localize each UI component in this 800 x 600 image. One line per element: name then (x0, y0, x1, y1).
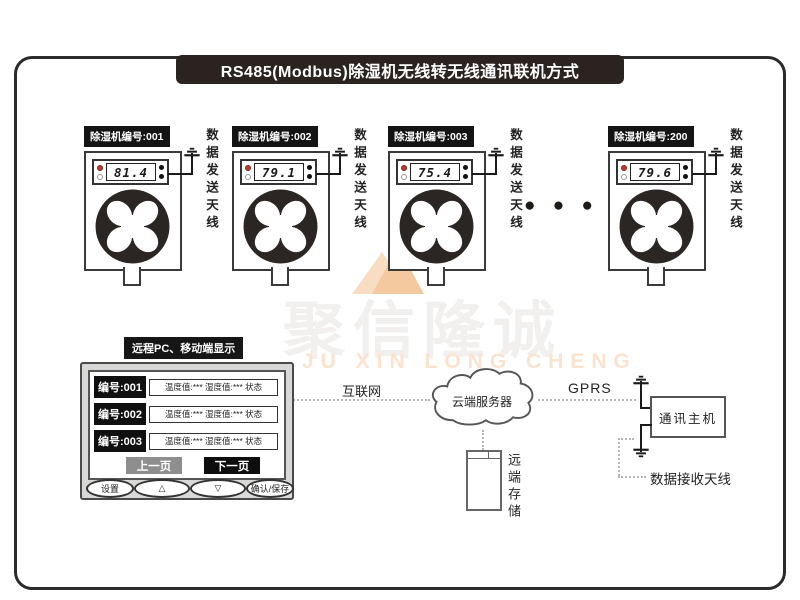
monitor-row: 编号:002 温度值:*** 湿度值:*** 状态 (94, 404, 278, 424)
unit-foot (123, 267, 141, 286)
row-info: 温度值:*** 湿度值:*** 状态 (149, 379, 278, 396)
host-tx-antenna-icon (632, 436, 650, 459)
led-indicators (401, 165, 407, 180)
fan-icon (94, 188, 171, 265)
unit-foot (427, 267, 445, 286)
settings-button[interactable]: 设置 (86, 479, 134, 498)
title-banner: RS485(Modbus)除湿机无线转无线通讯联机方式 (176, 55, 624, 84)
unit-id-badge: 除湿机编号:003 (388, 126, 474, 147)
status-led-icon (621, 174, 627, 180)
up-arrow-button[interactable]: △ (134, 479, 190, 498)
send-antenna-label: 数据发送天线 (350, 128, 369, 233)
antenna-icon (183, 146, 201, 169)
row-info: 温度值:*** 湿度值:*** 状态 (149, 406, 278, 423)
comm-host-box: 通讯主机 (650, 396, 726, 438)
storage-box-lid (468, 452, 500, 459)
gprs-label: GPRS (568, 380, 612, 396)
power-led-icon (401, 165, 407, 171)
button-dots (463, 165, 468, 179)
control-display: 79.6 (616, 159, 693, 185)
unit-id-badge: 除湿机编号:001 (84, 126, 170, 147)
row-info: 温度值:*** 湿度值:*** 状态 (149, 433, 278, 450)
diagram-canvas: 聚信隆诚 JU XIN LONG CHENG RS485(Modbus)除湿机无… (0, 0, 800, 600)
monitor-row: 编号:001 温度值:*** 湿度值:*** 状态 (94, 377, 278, 397)
monitor-screen: 编号:001 温度值:*** 湿度值:*** 状态 编号:002 温度值:***… (88, 370, 286, 480)
down-arrow-button[interactable]: ▽ (190, 479, 246, 498)
button-dots (683, 165, 688, 179)
confirm-save-button[interactable]: 确认/保存 (246, 479, 294, 498)
fan-icon (398, 188, 475, 265)
antenna-icon (707, 146, 725, 169)
unit-foot (271, 267, 289, 286)
receive-antenna-line (618, 438, 620, 476)
antenna-icon (487, 146, 505, 169)
row-id-badge: 编号:002 (94, 403, 146, 425)
control-display: 79.1 (240, 159, 317, 185)
status-led-icon (401, 174, 407, 180)
storage-line (482, 430, 484, 450)
row-id-badge: 编号:001 (94, 376, 146, 398)
button-dots (307, 165, 312, 179)
button-dots (159, 165, 164, 179)
send-antenna-label: 数据发送天线 (726, 128, 745, 233)
power-led-icon (245, 165, 251, 171)
monitor-row: 编号:003 温度值:*** 湿度值:*** 状态 (94, 431, 278, 451)
power-led-icon (97, 165, 103, 171)
led-indicators (97, 165, 103, 180)
led-indicators (245, 165, 251, 180)
power-led-icon (621, 165, 627, 171)
status-led-icon (245, 174, 251, 180)
unit-foot (647, 267, 665, 286)
more-units-ellipsis: ● ● ● (524, 195, 599, 217)
internet-label: 互联网 (342, 381, 381, 400)
display-value: 79.6 (630, 163, 680, 181)
control-display: 81.4 (92, 159, 169, 185)
send-antenna-label: 数据发送天线 (202, 128, 221, 233)
monitor-title-badge: 远程PC、移动端显示 (124, 337, 243, 359)
display-value: 75.4 (410, 163, 460, 181)
send-antenna-label: 数据发送天线 (506, 128, 525, 233)
unit-id-badge: 除湿机编号:200 (608, 126, 694, 147)
fan-icon (242, 188, 319, 265)
dehumidifier-unit-200: 除湿机编号:200 79.6 数据发送天线 (608, 120, 748, 290)
receive-antenna-line (618, 476, 646, 478)
gprs-line (538, 399, 636, 401)
unit-id-badge: 除湿机编号:002 (232, 126, 318, 147)
antenna-icon (331, 146, 349, 169)
control-display: 75.4 (396, 159, 473, 185)
dehumidifier-unit-002: 除湿机编号:002 79.1 数据发送天线 (232, 120, 372, 290)
led-indicators (621, 165, 627, 180)
status-led-icon (97, 174, 103, 180)
row-id-badge: 编号:003 (94, 430, 146, 452)
receive-antenna-line (618, 438, 634, 440)
host-rx-antenna-icon (632, 374, 650, 397)
dehumidifier-unit-003: 除湿机编号:003 75.4 数据发送天线 (388, 120, 528, 290)
receive-antenna-label: 数据接收天线 (650, 468, 731, 488)
monitor-button-row: 设置 △ ▽ 确认/保存 (86, 479, 288, 498)
fan-icon (618, 188, 695, 265)
dehumidifier-unit-001: 除湿机编号:001 81.4 数据发送天线 (84, 120, 224, 290)
storage-box (466, 450, 502, 511)
host-antenna-connector (640, 424, 652, 439)
storage-label: 远端存储 (504, 453, 523, 521)
prev-page-button[interactable]: 上一页 (126, 457, 182, 474)
remote-monitor: 编号:001 温度值:*** 湿度值:*** 状态 编号:002 温度值:***… (80, 362, 294, 500)
cloud-server-label: 云端服务器 (430, 393, 534, 410)
display-value: 79.1 (254, 163, 304, 181)
display-value: 81.4 (106, 163, 156, 181)
next-page-button[interactable]: 下一页 (204, 457, 260, 474)
